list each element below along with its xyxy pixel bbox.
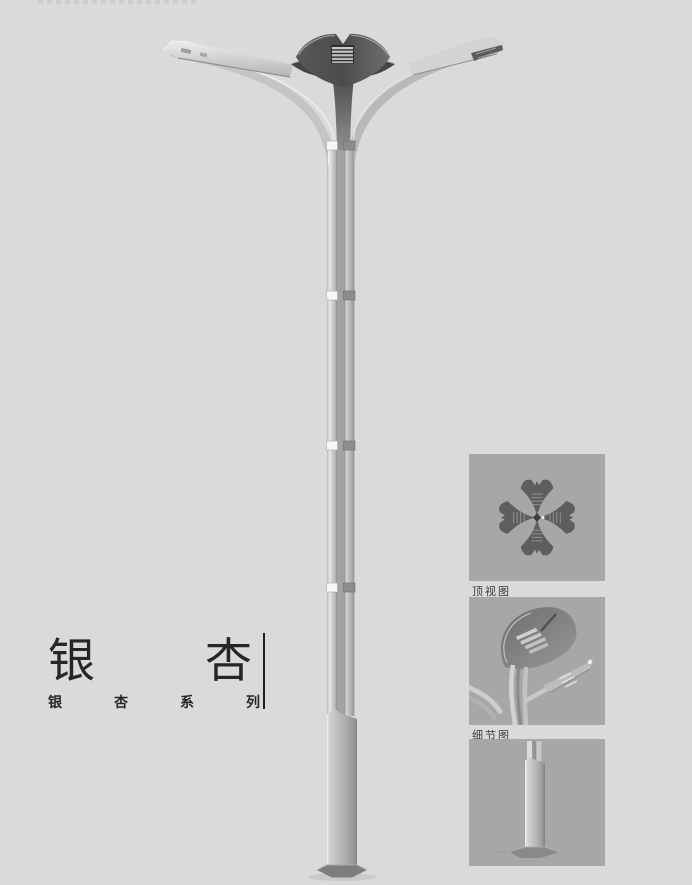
detail-panel-top-view bbox=[469, 454, 605, 581]
product-series-subtitle: 银 杏 系 列 bbox=[48, 692, 260, 712]
product-title: 银 杏 bbox=[48, 636, 252, 685]
base-column bbox=[327, 708, 357, 866]
detail-panel-base bbox=[469, 739, 605, 866]
detail-panel-head bbox=[469, 597, 605, 725]
series-char: 杏 bbox=[114, 692, 128, 712]
series-char: 系 bbox=[180, 692, 194, 712]
title-divider-line bbox=[263, 633, 265, 709]
right-lamp-head bbox=[408, 37, 505, 75]
series-char: 列 bbox=[246, 692, 260, 712]
title-char: 杏 bbox=[205, 636, 252, 685]
lamp-head-detail-image bbox=[469, 597, 605, 725]
title-char: 银 bbox=[48, 636, 95, 685]
crown-louvers bbox=[331, 45, 354, 64]
pole-tubes bbox=[328, 150, 354, 716]
lamp-top-view-image bbox=[469, 454, 605, 581]
catalog-page: 银 杏 银 杏 系 列 顶视图 bbox=[0, 0, 692, 885]
series-char: 银 bbox=[48, 692, 62, 712]
left-lamp-head bbox=[163, 41, 293, 77]
pole-base-image bbox=[469, 739, 605, 866]
